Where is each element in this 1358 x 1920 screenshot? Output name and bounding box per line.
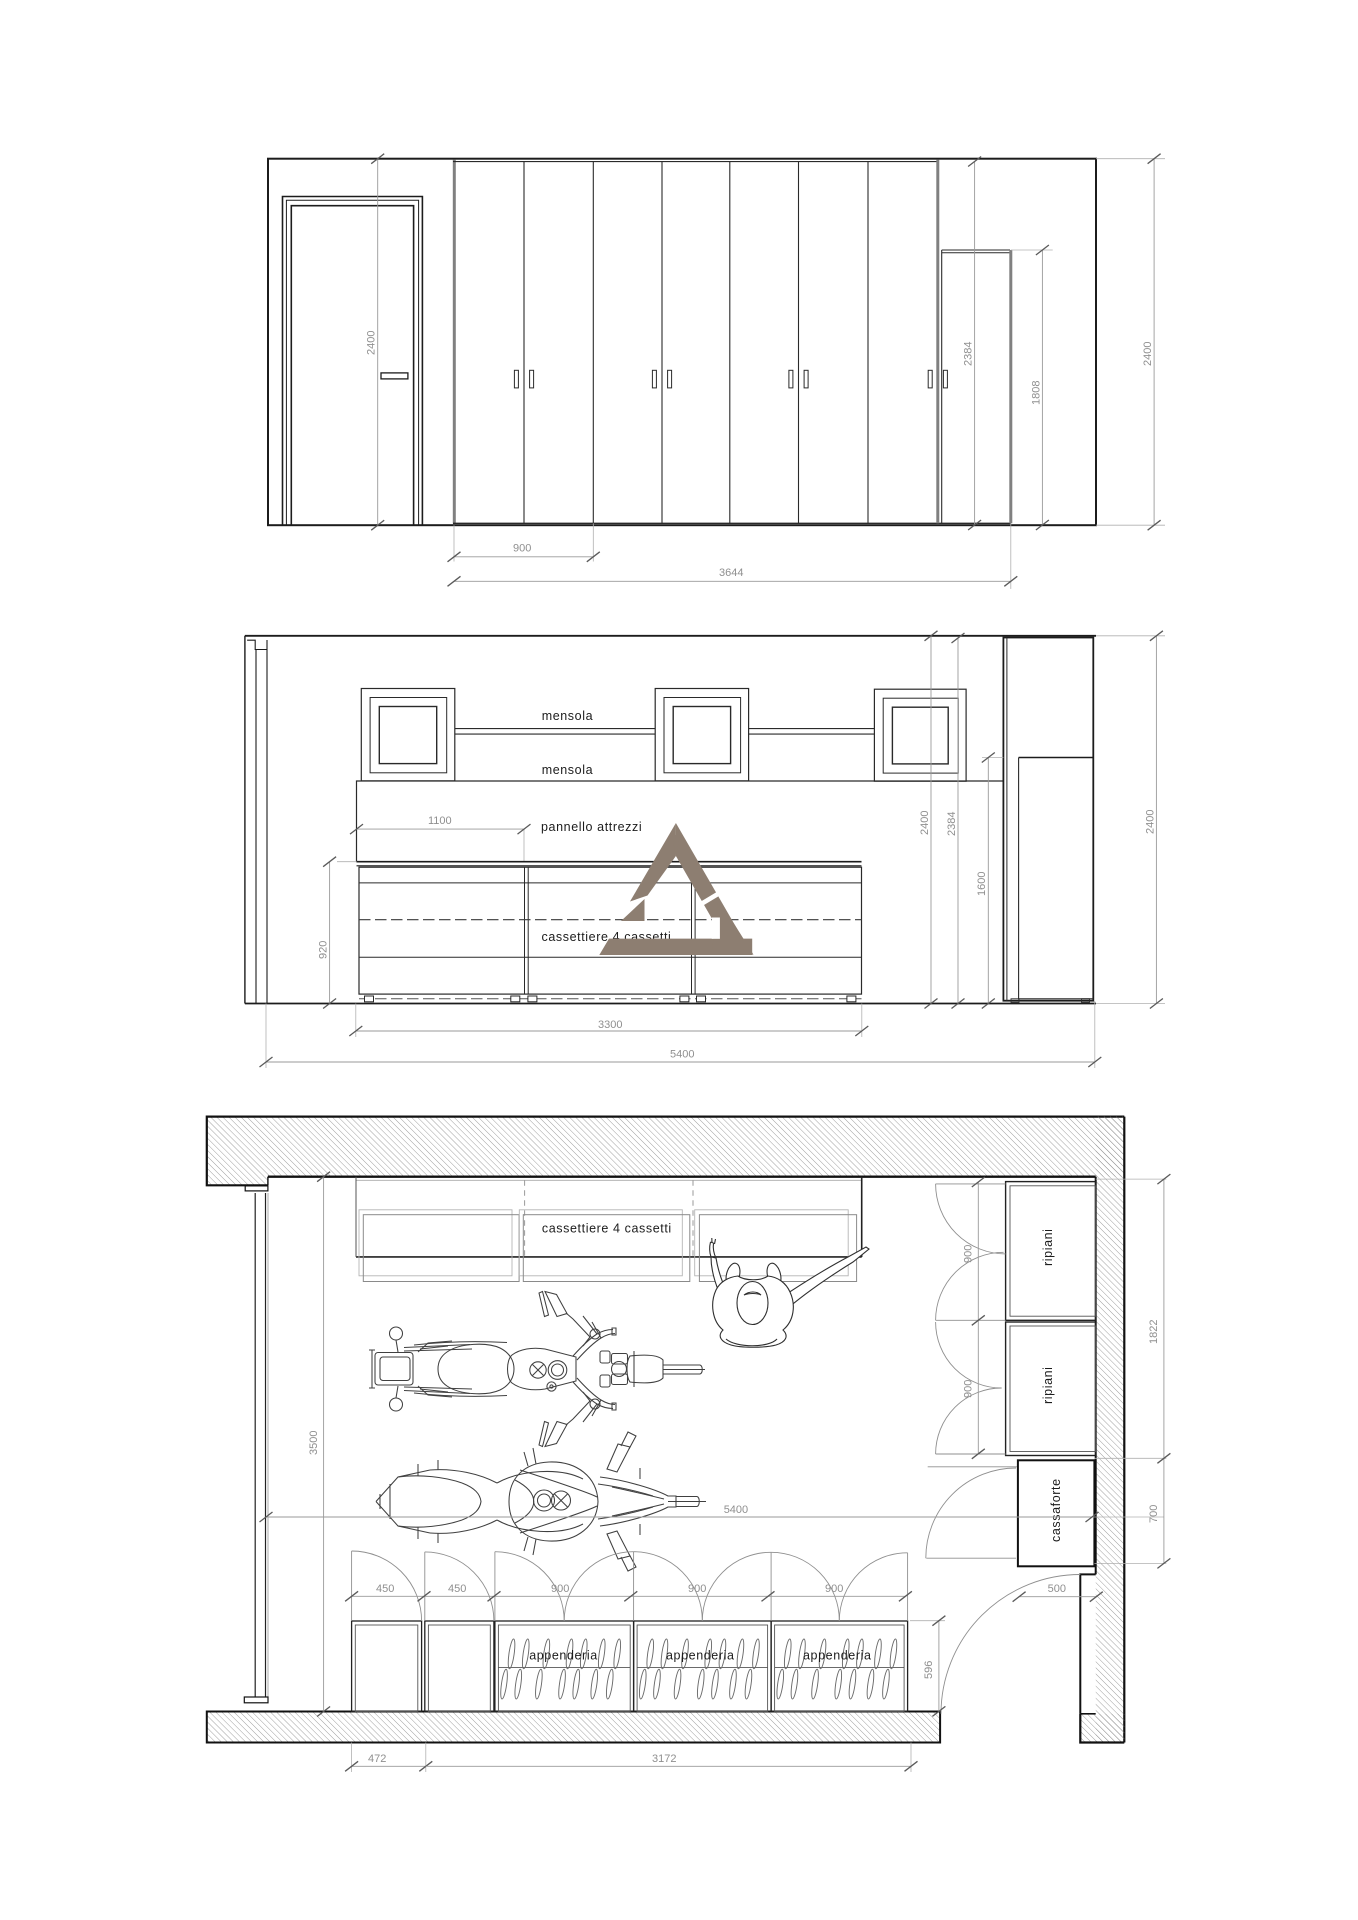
svg-text:3500: 3500 — [308, 1431, 320, 1455]
svg-text:700: 700 — [1148, 1505, 1160, 1523]
svg-text:mensola: mensola — [542, 763, 593, 777]
svg-text:596: 596 — [923, 1661, 935, 1679]
svg-text:3300: 3300 — [598, 1019, 622, 1031]
svg-text:appenderia: appenderia — [529, 1649, 598, 1663]
svg-text:cassettiere 4 cassetti: cassettiere 4 cassetti — [542, 1222, 672, 1236]
svg-text:appenderia: appenderia — [803, 1649, 872, 1663]
svg-text:2384: 2384 — [963, 342, 975, 366]
svg-text:2400: 2400 — [1142, 342, 1154, 366]
svg-text:450: 450 — [448, 1583, 466, 1595]
svg-text:2384: 2384 — [946, 812, 958, 836]
svg-text:appenderia: appenderia — [666, 1649, 735, 1663]
svg-text:900: 900 — [688, 1583, 706, 1595]
svg-text:1600: 1600 — [976, 872, 988, 896]
svg-text:3644: 3644 — [719, 567, 743, 579]
svg-text:cassaforte: cassaforte — [1049, 1478, 1063, 1542]
svg-text:ripiani: ripiani — [1041, 1228, 1055, 1266]
svg-text:450: 450 — [376, 1583, 394, 1595]
svg-text:920: 920 — [318, 941, 330, 959]
svg-text:900: 900 — [551, 1583, 569, 1595]
svg-text:900: 900 — [963, 1245, 975, 1263]
svg-text:5400: 5400 — [670, 1049, 694, 1061]
svg-text:3172: 3172 — [652, 1753, 676, 1765]
svg-text:ripiani: ripiani — [1041, 1366, 1055, 1404]
svg-text:2400: 2400 — [366, 331, 378, 355]
svg-text:472: 472 — [368, 1753, 386, 1765]
svg-text:pannello attrezzi: pannello attrezzi — [541, 820, 642, 834]
svg-text:mensola: mensola — [542, 709, 593, 723]
svg-text:1100: 1100 — [428, 815, 452, 827]
svg-text:5400: 5400 — [724, 1504, 748, 1516]
svg-text:500: 500 — [1048, 1583, 1066, 1595]
svg-text:2400: 2400 — [1144, 810, 1156, 834]
svg-text:2400: 2400 — [919, 811, 931, 835]
svg-text:900: 900 — [963, 1380, 975, 1398]
svg-text:900: 900 — [513, 543, 531, 555]
svg-text:1822: 1822 — [1148, 1320, 1160, 1344]
svg-text:1808: 1808 — [1030, 381, 1042, 405]
svg-text:900: 900 — [825, 1583, 843, 1595]
